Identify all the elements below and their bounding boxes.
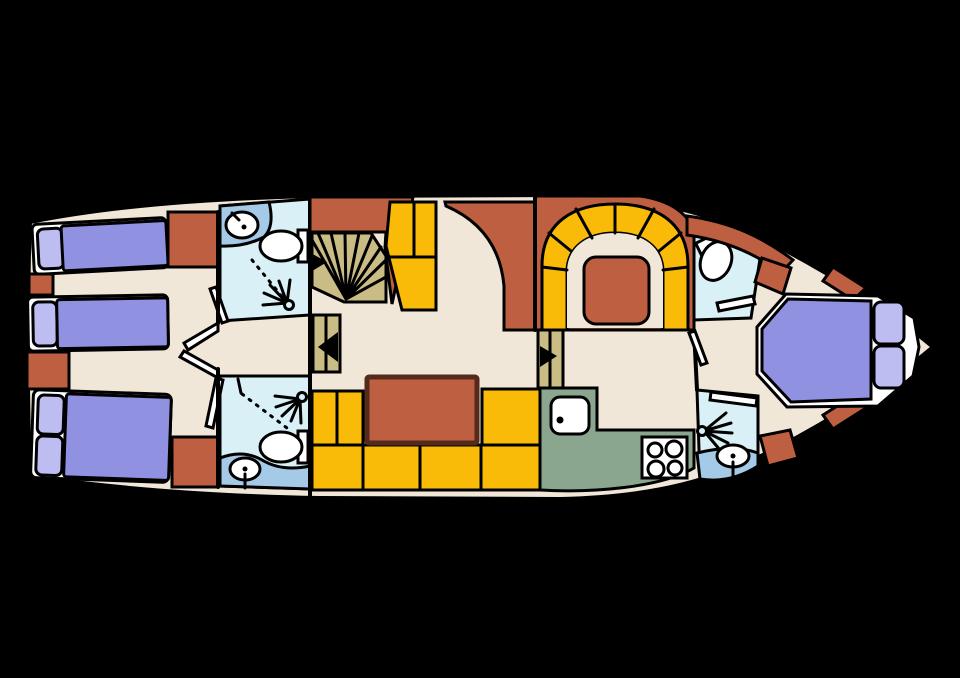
- burner: [648, 461, 664, 477]
- burner: [648, 443, 662, 457]
- berth-aft-double: [31, 390, 172, 483]
- drain: [242, 225, 247, 230]
- toilet: [260, 432, 302, 462]
- dinette-table: [584, 257, 649, 324]
- burner: [668, 461, 682, 475]
- storage-block: [27, 352, 69, 389]
- drain: [243, 467, 248, 472]
- drain: [557, 417, 564, 424]
- aft-bathroom-bottom: [206, 376, 310, 489]
- sofa-right-arm: [482, 389, 540, 445]
- pillow: [33, 302, 58, 346]
- berth-aft-middle: [28, 295, 169, 351]
- bed-blanket: [61, 221, 168, 271]
- storage-block: [168, 212, 218, 267]
- storage-block: [172, 437, 218, 487]
- shower-head: [298, 393, 307, 402]
- pillow: [37, 395, 64, 435]
- aft-cabin: [27, 212, 218, 487]
- berth-aft-top: [32, 218, 168, 275]
- bed-blanket: [57, 298, 169, 349]
- storage-block: [29, 274, 53, 295]
- bow-cabin: [757, 294, 919, 407]
- deck-plan: [0, 0, 960, 678]
- bed-blanket: [64, 394, 172, 481]
- storage-block: [760, 430, 798, 466]
- shower-head: [698, 427, 707, 436]
- burner: [666, 441, 682, 457]
- pillow: [874, 302, 904, 344]
- bow-steps: [538, 330, 563, 388]
- pillow: [874, 346, 904, 388]
- fwd-bathroom-bottom: [697, 390, 758, 480]
- toilet: [260, 231, 302, 261]
- dinette: [535, 196, 694, 330]
- sofa-base: [312, 445, 540, 490]
- drain: [731, 454, 736, 459]
- aft-bathroom-top: [210, 199, 310, 323]
- pillow: [36, 436, 63, 476]
- bed-blanket: [762, 299, 871, 402]
- sink: [226, 212, 258, 238]
- salon-table: [367, 377, 477, 443]
- galley-sink: [551, 397, 589, 434]
- shower-head: [285, 301, 294, 310]
